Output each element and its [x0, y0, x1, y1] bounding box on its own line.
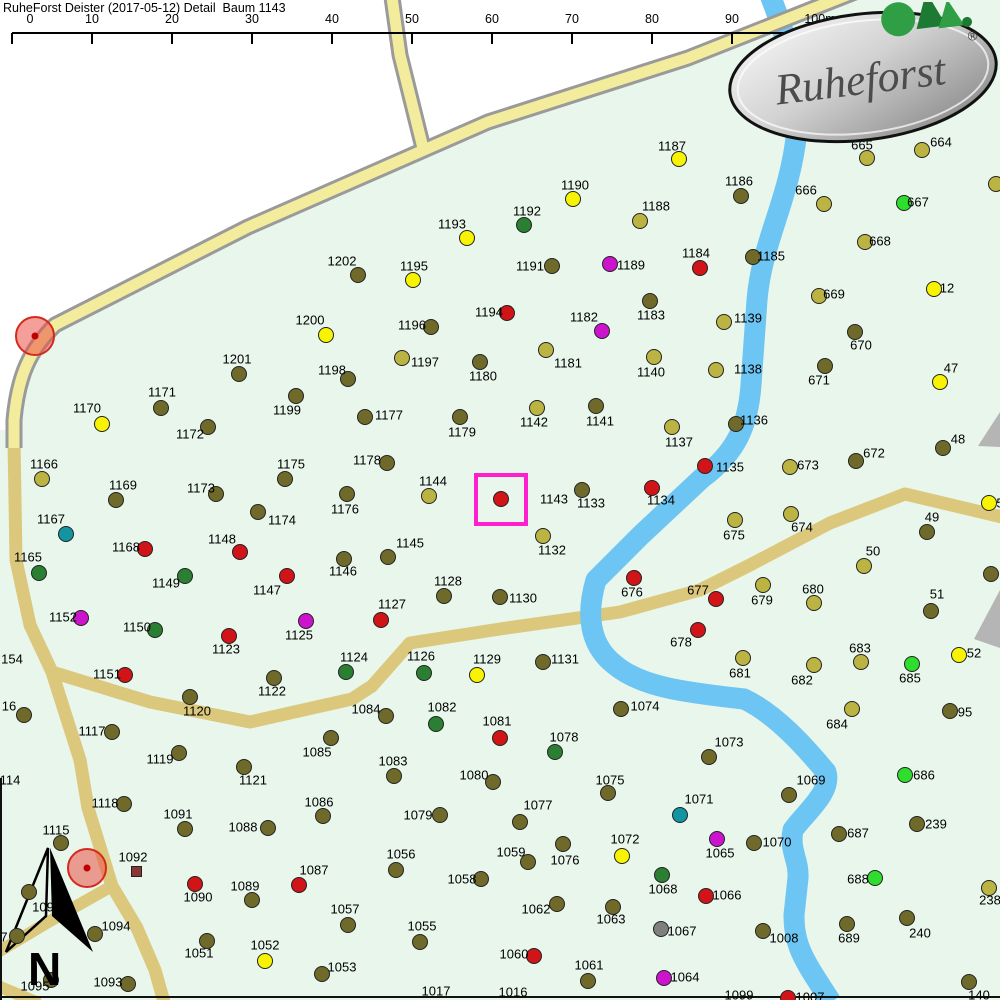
tree-label: 1057: [331, 902, 360, 917]
tree-label: 1064: [671, 970, 700, 985]
scale-label: 50: [405, 12, 419, 26]
tree-dot-1124[interactable]: [338, 664, 354, 680]
tree-dot-1138[interactable]: [708, 362, 724, 378]
tree-dot-1186[interactable]: [733, 188, 749, 204]
tree-label: 1185: [757, 249, 785, 264]
tree-label: 1166: [30, 457, 58, 472]
tree-dot-52[interactable]: [951, 647, 967, 663]
tree-dot-1074[interactable]: [613, 701, 629, 717]
tree-label: 1126: [407, 649, 435, 664]
poi-center-dot: [84, 865, 91, 872]
tree-label: 1118: [92, 796, 119, 811]
tree-label: 1051: [185, 946, 214, 961]
tree-label: 1186: [725, 174, 753, 189]
tree-label: 1193: [438, 217, 466, 232]
tree-label: 1067: [668, 924, 697, 939]
tree-dot-1189[interactable]: [602, 256, 618, 272]
tree-label: 667: [907, 195, 929, 210]
tree-dot-47[interactable]: [932, 374, 948, 390]
tree-dot-1052[interactable]: [257, 953, 273, 969]
tree-label: 1139: [734, 311, 762, 326]
tree-label: 1070: [763, 835, 792, 850]
tree-dot-686[interactable]: [897, 767, 913, 783]
tree-dot-1184[interactable]: [692, 260, 708, 276]
tree-label: 1078: [550, 730, 579, 745]
tree-label: 1085: [303, 745, 332, 760]
tree-label: 48: [951, 432, 965, 447]
tree-label: 1074: [631, 699, 660, 714]
tree-label: 1123: [212, 642, 240, 657]
tree-dot-1091[interactable]: [177, 821, 193, 837]
tree-dot-1179[interactable]: [452, 409, 468, 425]
tree-label: 1071: [685, 792, 714, 807]
tree-label: 7: [0, 930, 7, 945]
tree-label: 689: [838, 931, 860, 946]
tree-label: 154: [1, 652, 23, 667]
tree-dot-1081[interactable]: [492, 730, 508, 746]
tree-dot-1071[interactable]: [672, 807, 688, 823]
tree-label: 238: [979, 893, 1000, 908]
tree-label: 679: [751, 593, 773, 608]
tree-dot-672[interactable]: [848, 453, 864, 469]
tree-label: 1178: [353, 453, 381, 468]
tree-dot-51[interactable]: [923, 603, 939, 619]
tree-dot-1135[interactable]: [697, 458, 713, 474]
tree-dot-1140[interactable]: [646, 349, 662, 365]
tree-dot-1082[interactable]: [428, 716, 444, 732]
tree-label: 1127: [378, 597, 406, 612]
tree-dot-1072[interactable]: [614, 848, 630, 864]
tree-label: 1075: [596, 773, 625, 788]
tree-label: 1187: [658, 139, 686, 154]
tree-label: 674: [791, 520, 813, 535]
tree-dot-1145[interactable]: [380, 549, 396, 565]
tree-label: 109: [32, 900, 54, 915]
tree-dot-48[interactable]: [935, 440, 951, 456]
tree-dot-95[interactable]: [942, 703, 958, 719]
tree-dot-1190[interactable]: [565, 191, 581, 207]
tree-label: 1169: [109, 478, 137, 493]
tree-label: 1079: [404, 808, 433, 823]
tree-dot-1127[interactable]: [373, 612, 389, 628]
tree-label: 1089: [231, 879, 260, 894]
tree-dot-1126[interactable]: [416, 665, 432, 681]
tree-dot-666[interactable]: [816, 196, 832, 212]
tree-label: 1140: [637, 365, 665, 380]
tree-label: 1122: [258, 684, 286, 699]
tree-dot-1129[interactable]: [469, 667, 485, 683]
tree-dot-1083[interactable]: [386, 768, 402, 784]
tree-dot-1191[interactable]: [544, 258, 560, 274]
tree-dot-1078[interactable]: [547, 744, 563, 760]
tree-dot-1147[interactable]: [279, 568, 295, 584]
tree-label: 50: [866, 544, 880, 559]
tree-label: 1115: [43, 823, 70, 838]
ruheforst-logo: Ruheforst ®: [720, 2, 1000, 154]
tree-label: 681: [729, 666, 751, 681]
tree-dot-673[interactable]: [782, 459, 798, 475]
tree-dot-1181[interactable]: [538, 342, 554, 358]
tree-dot-1061[interactable]: [580, 973, 596, 989]
tree-dot-1070[interactable]: [746, 835, 762, 851]
tree-label: 95: [958, 705, 972, 720]
tree-label: 1135: [716, 460, 744, 475]
tree-dot-5[interactable]: [981, 495, 997, 511]
tree-dot-680[interactable]: [806, 595, 822, 611]
tree-dot-1137[interactable]: [664, 419, 680, 435]
tree-label: 240: [909, 926, 931, 941]
tree-label: 1069: [797, 773, 826, 788]
tree-label: 1056: [387, 847, 416, 862]
tree-label: 669: [823, 287, 845, 302]
tree-label: 49: [925, 510, 939, 525]
tree-label: 1066: [713, 888, 742, 903]
tree-dot-1088[interactable]: [260, 820, 276, 836]
tree-dot-50[interactable]: [856, 558, 872, 574]
tree-dot-1055[interactable]: [412, 934, 428, 950]
tree-label: 1192: [513, 204, 541, 219]
tree-label: 1138: [734, 362, 762, 377]
tree-dot-1131[interactable]: [535, 654, 551, 670]
tree-dot-1141[interactable]: [588, 398, 604, 414]
tree-label: 1077: [524, 798, 553, 813]
tree-dot-688[interactable]: [867, 870, 883, 886]
tree-dot-1177[interactable]: [357, 409, 373, 425]
tree-label: 12: [940, 281, 954, 296]
tree-label: 1182: [570, 310, 598, 325]
tree-dot-1144[interactable]: [421, 488, 437, 504]
tree-label: 1088: [229, 820, 258, 835]
tree-dot-unlabeled[interactable]: [988, 176, 1000, 192]
tree-dot-16[interactable]: [16, 707, 32, 723]
tree-label: 1200: [296, 313, 325, 328]
tree-label: 1091: [164, 807, 193, 822]
tree-label: 1190: [561, 178, 589, 193]
tree-label: 1136: [740, 413, 768, 428]
tree-label: 1170: [73, 401, 101, 416]
tree-dot-1077[interactable]: [512, 814, 528, 830]
tree-label: 1194: [475, 305, 503, 320]
tree-label: 1197: [411, 355, 439, 370]
tree-label: 1117: [79, 724, 106, 739]
tree-label: 670: [850, 338, 872, 353]
tree-label: 1093: [94, 975, 123, 990]
tree-label: 1171: [148, 385, 176, 400]
tree-label: 1146: [329, 564, 357, 579]
tree-label: 1087: [300, 863, 329, 878]
tree-label: 1167: [37, 512, 65, 527]
tree-dot-1092[interactable]: [131, 866, 142, 877]
tree-label: 1058: [448, 872, 477, 887]
map-title: RuheForst Deister (2017-05-12) Detail Ba…: [3, 1, 286, 15]
poi-center-dot: [32, 333, 39, 340]
tree-dot-1170[interactable]: [94, 416, 110, 432]
tree-label: 1131: [551, 652, 579, 667]
tree-label: 1083: [379, 754, 408, 769]
tree-dot-1069[interactable]: [781, 787, 797, 803]
tree-label: 1199: [273, 403, 301, 418]
tree-label: 1151: [93, 667, 121, 682]
poi-marker-1[interactable]: [15, 316, 55, 356]
tree-label: 1148: [208, 532, 236, 547]
tree-label: 1149: [152, 576, 180, 591]
tree-dot-1166[interactable]: [34, 471, 50, 487]
tree-label: 1189: [617, 258, 645, 273]
tree-dot-1188[interactable]: [632, 213, 648, 229]
tree-label: 1141: [586, 414, 614, 429]
tree-label: 1072: [611, 832, 640, 847]
tree-label: 239: [925, 817, 947, 832]
tree-label: 1124: [340, 650, 368, 665]
tree-dot-1056[interactable]: [388, 862, 404, 878]
tree-label: 1180: [469, 369, 497, 384]
tree-label: 1137: [665, 435, 693, 450]
scale-label: 70: [565, 12, 579, 26]
tree-dot-678[interactable]: [690, 622, 706, 638]
tree-label: 680: [802, 582, 824, 597]
tree-label: 1191: [516, 259, 544, 274]
tree-label: 682: [791, 673, 813, 688]
tree-label: 672: [863, 446, 885, 461]
tree-label: 678: [670, 635, 692, 650]
tree-dot-1130[interactable]: [492, 589, 508, 605]
tree-label: 1147: [253, 583, 281, 598]
tree-dot-1202[interactable]: [350, 267, 366, 283]
tree-dot-687[interactable]: [831, 826, 847, 842]
tree-label: 1059: [497, 845, 526, 860]
tree-dot-684[interactable]: [844, 701, 860, 717]
tree-label: 675: [723, 528, 745, 543]
tree-label: 688: [847, 872, 869, 887]
tree-label: 1168: [112, 540, 140, 555]
tree-label: 1094: [102, 919, 131, 934]
tree-dot-1089[interactable]: [244, 892, 260, 908]
tree-label: 1165: [14, 550, 42, 565]
tree-dot-1057[interactable]: [340, 917, 356, 933]
map-viewport: 1187119011921188118611931202119511911189…: [0, 0, 1000, 1000]
tree-label: 1183: [637, 308, 665, 323]
tree-label: 671: [808, 373, 830, 388]
tree-dot-unlabeled[interactable]: [983, 566, 999, 582]
tree-dot-49[interactable]: [919, 524, 935, 540]
tree-dot-1200[interactable]: [318, 327, 334, 343]
tree-label: 677: [687, 583, 709, 598]
tree-label: 1125: [285, 628, 313, 643]
tree-label: 51: [930, 587, 944, 602]
tree-label: 686: [913, 768, 935, 783]
tree-label: 684: [826, 717, 848, 732]
poi-marker-2[interactable]: [67, 848, 107, 888]
tree-label: 1152: [49, 610, 77, 625]
tree-label: 1177: [375, 408, 403, 423]
tree-label: 668: [869, 234, 891, 249]
tree-dot-1139[interactable]: [716, 314, 732, 330]
tree-label: 1065: [706, 846, 735, 861]
tree-dot-682[interactable]: [806, 657, 822, 673]
tree-dot-1165[interactable]: [31, 565, 47, 581]
tree-label: 52: [967, 646, 981, 661]
tree-label: 1073: [715, 735, 744, 750]
tree-dot-675[interactable]: [727, 512, 743, 528]
tree-label: 1195: [400, 259, 428, 274]
tree-label: 1144: [419, 474, 447, 489]
tree-label: 683: [849, 641, 871, 656]
tree-label: 1176: [331, 502, 359, 517]
tree-label: 1119: [147, 752, 174, 767]
tree-label: 1145: [396, 536, 424, 551]
tree-label: 1129: [473, 652, 501, 667]
tree-label: 1063: [597, 912, 626, 927]
tree-dot-1175[interactable]: [277, 471, 293, 487]
tree-dot-1178[interactable]: [379, 455, 395, 471]
tree-label: 1016: [499, 985, 528, 1000]
tree-dot-1062[interactable]: [549, 896, 565, 912]
tree-label: 1060: [500, 947, 529, 962]
tree-label: 1184: [682, 246, 710, 261]
tree-dot-1176[interactable]: [339, 486, 355, 502]
tree-label: 1173: [187, 481, 215, 496]
tree-label: 1133: [577, 496, 605, 511]
tree-label: 1142: [520, 415, 548, 430]
tree-dot-1193[interactable]: [459, 230, 475, 246]
tree-label: 1172: [176, 427, 204, 442]
tree-label: 1061: [575, 958, 604, 973]
tree-label: 1134: [647, 493, 675, 508]
tree-dot-1128[interactable]: [436, 588, 452, 604]
tree-dot-1174[interactable]: [250, 504, 266, 520]
tree-dot-1195[interactable]: [405, 272, 421, 288]
tree-dot-1086[interactable]: [315, 808, 331, 824]
tree-label: 1196: [398, 318, 426, 333]
tree-dot-1117[interactable]: [104, 724, 120, 740]
logo-registered-mark: ®: [967, 28, 979, 44]
tree-label: 1052: [251, 938, 280, 953]
tree-label: 1120: [183, 704, 211, 719]
tree-dot-240[interactable]: [899, 910, 915, 926]
tree-dot-1201[interactable]: [231, 366, 247, 382]
scale-label: 80: [645, 12, 659, 26]
tree-label: 1080: [460, 768, 489, 783]
tree-label: 1130: [509, 591, 537, 606]
tree-dot-1167[interactable]: [58, 526, 74, 542]
tree-dot-1171[interactable]: [153, 400, 169, 416]
tree-dot-1192[interactable]: [516, 217, 532, 233]
scale-label: 60: [485, 12, 499, 26]
tree-label: 1174: [268, 513, 296, 528]
tree-label: 1076: [551, 853, 580, 868]
tree-label: 1068: [649, 882, 678, 897]
tree-label: 1017: [422, 984, 451, 999]
tree-label: 140: [968, 988, 990, 1000]
tree-label: 1188: [642, 199, 670, 214]
tree-dot-1073[interactable]: [701, 749, 717, 765]
tree-dot-1087[interactable]: [291, 877, 307, 893]
tree-label: 1181: [554, 356, 582, 371]
scale-label: 40: [325, 12, 339, 26]
tree-dot-7[interactable]: [9, 928, 25, 944]
tree-dot-109[interactable]: [21, 884, 37, 900]
tree-dot-1182[interactable]: [594, 323, 610, 339]
tree-dot-681[interactable]: [735, 650, 751, 666]
tree-label: 1150: [123, 620, 151, 635]
tree-label: 114: [0, 773, 20, 788]
tree-label: 1086: [305, 795, 334, 810]
tree-label: 1132: [538, 543, 566, 558]
tree-label: 1082: [428, 700, 457, 715]
tree-label: 1201: [223, 352, 252, 367]
tree-label: 1055: [408, 919, 437, 934]
north-label: N: [28, 942, 61, 996]
tree-label: 47: [944, 361, 958, 376]
tree-label: 1143: [540, 492, 568, 507]
tree-label: 685: [899, 671, 921, 686]
tree-label: 1179: [448, 425, 476, 440]
tree-dot-1076[interactable]: [555, 836, 571, 852]
tree-label: 1084: [352, 702, 381, 717]
tree-dot-239[interactable]: [909, 816, 925, 832]
tree-label: 1092: [119, 850, 148, 865]
tree-dot-683[interactable]: [853, 654, 869, 670]
tree-dot-1079[interactable]: [432, 807, 448, 823]
tree-label: 1202: [328, 254, 357, 269]
tree-label: 5: [996, 496, 1000, 511]
tree-dot-1197[interactable]: [394, 350, 410, 366]
tree-label: 1053: [328, 960, 357, 975]
tree-label: 676: [621, 585, 643, 600]
tree-label: 1121: [239, 773, 267, 788]
tree-label: 1008: [770, 931, 799, 946]
tree-label: 673: [797, 458, 819, 473]
tree-label: 666: [795, 183, 817, 198]
tree-label: 1090: [184, 890, 213, 905]
tree-label: 16: [2, 699, 16, 714]
tree-label: 1175: [277, 457, 305, 472]
tree-dot-679[interactable]: [755, 577, 771, 593]
tree-label: 1099: [725, 988, 754, 1000]
tree-dot-1169[interactable]: [108, 492, 124, 508]
selected-tree-highlight: [474, 473, 528, 526]
tree-label: 1007: [796, 990, 825, 1000]
tree-label: 1128: [434, 574, 462, 589]
tree-label: 687: [847, 826, 869, 841]
tree-label: 1081: [483, 714, 512, 729]
tree-dot-677[interactable]: [708, 591, 724, 607]
tree-label: 1198: [318, 363, 346, 378]
tree-label: 1062: [522, 902, 551, 917]
tree-dot-1007[interactable]: [780, 990, 796, 1000]
